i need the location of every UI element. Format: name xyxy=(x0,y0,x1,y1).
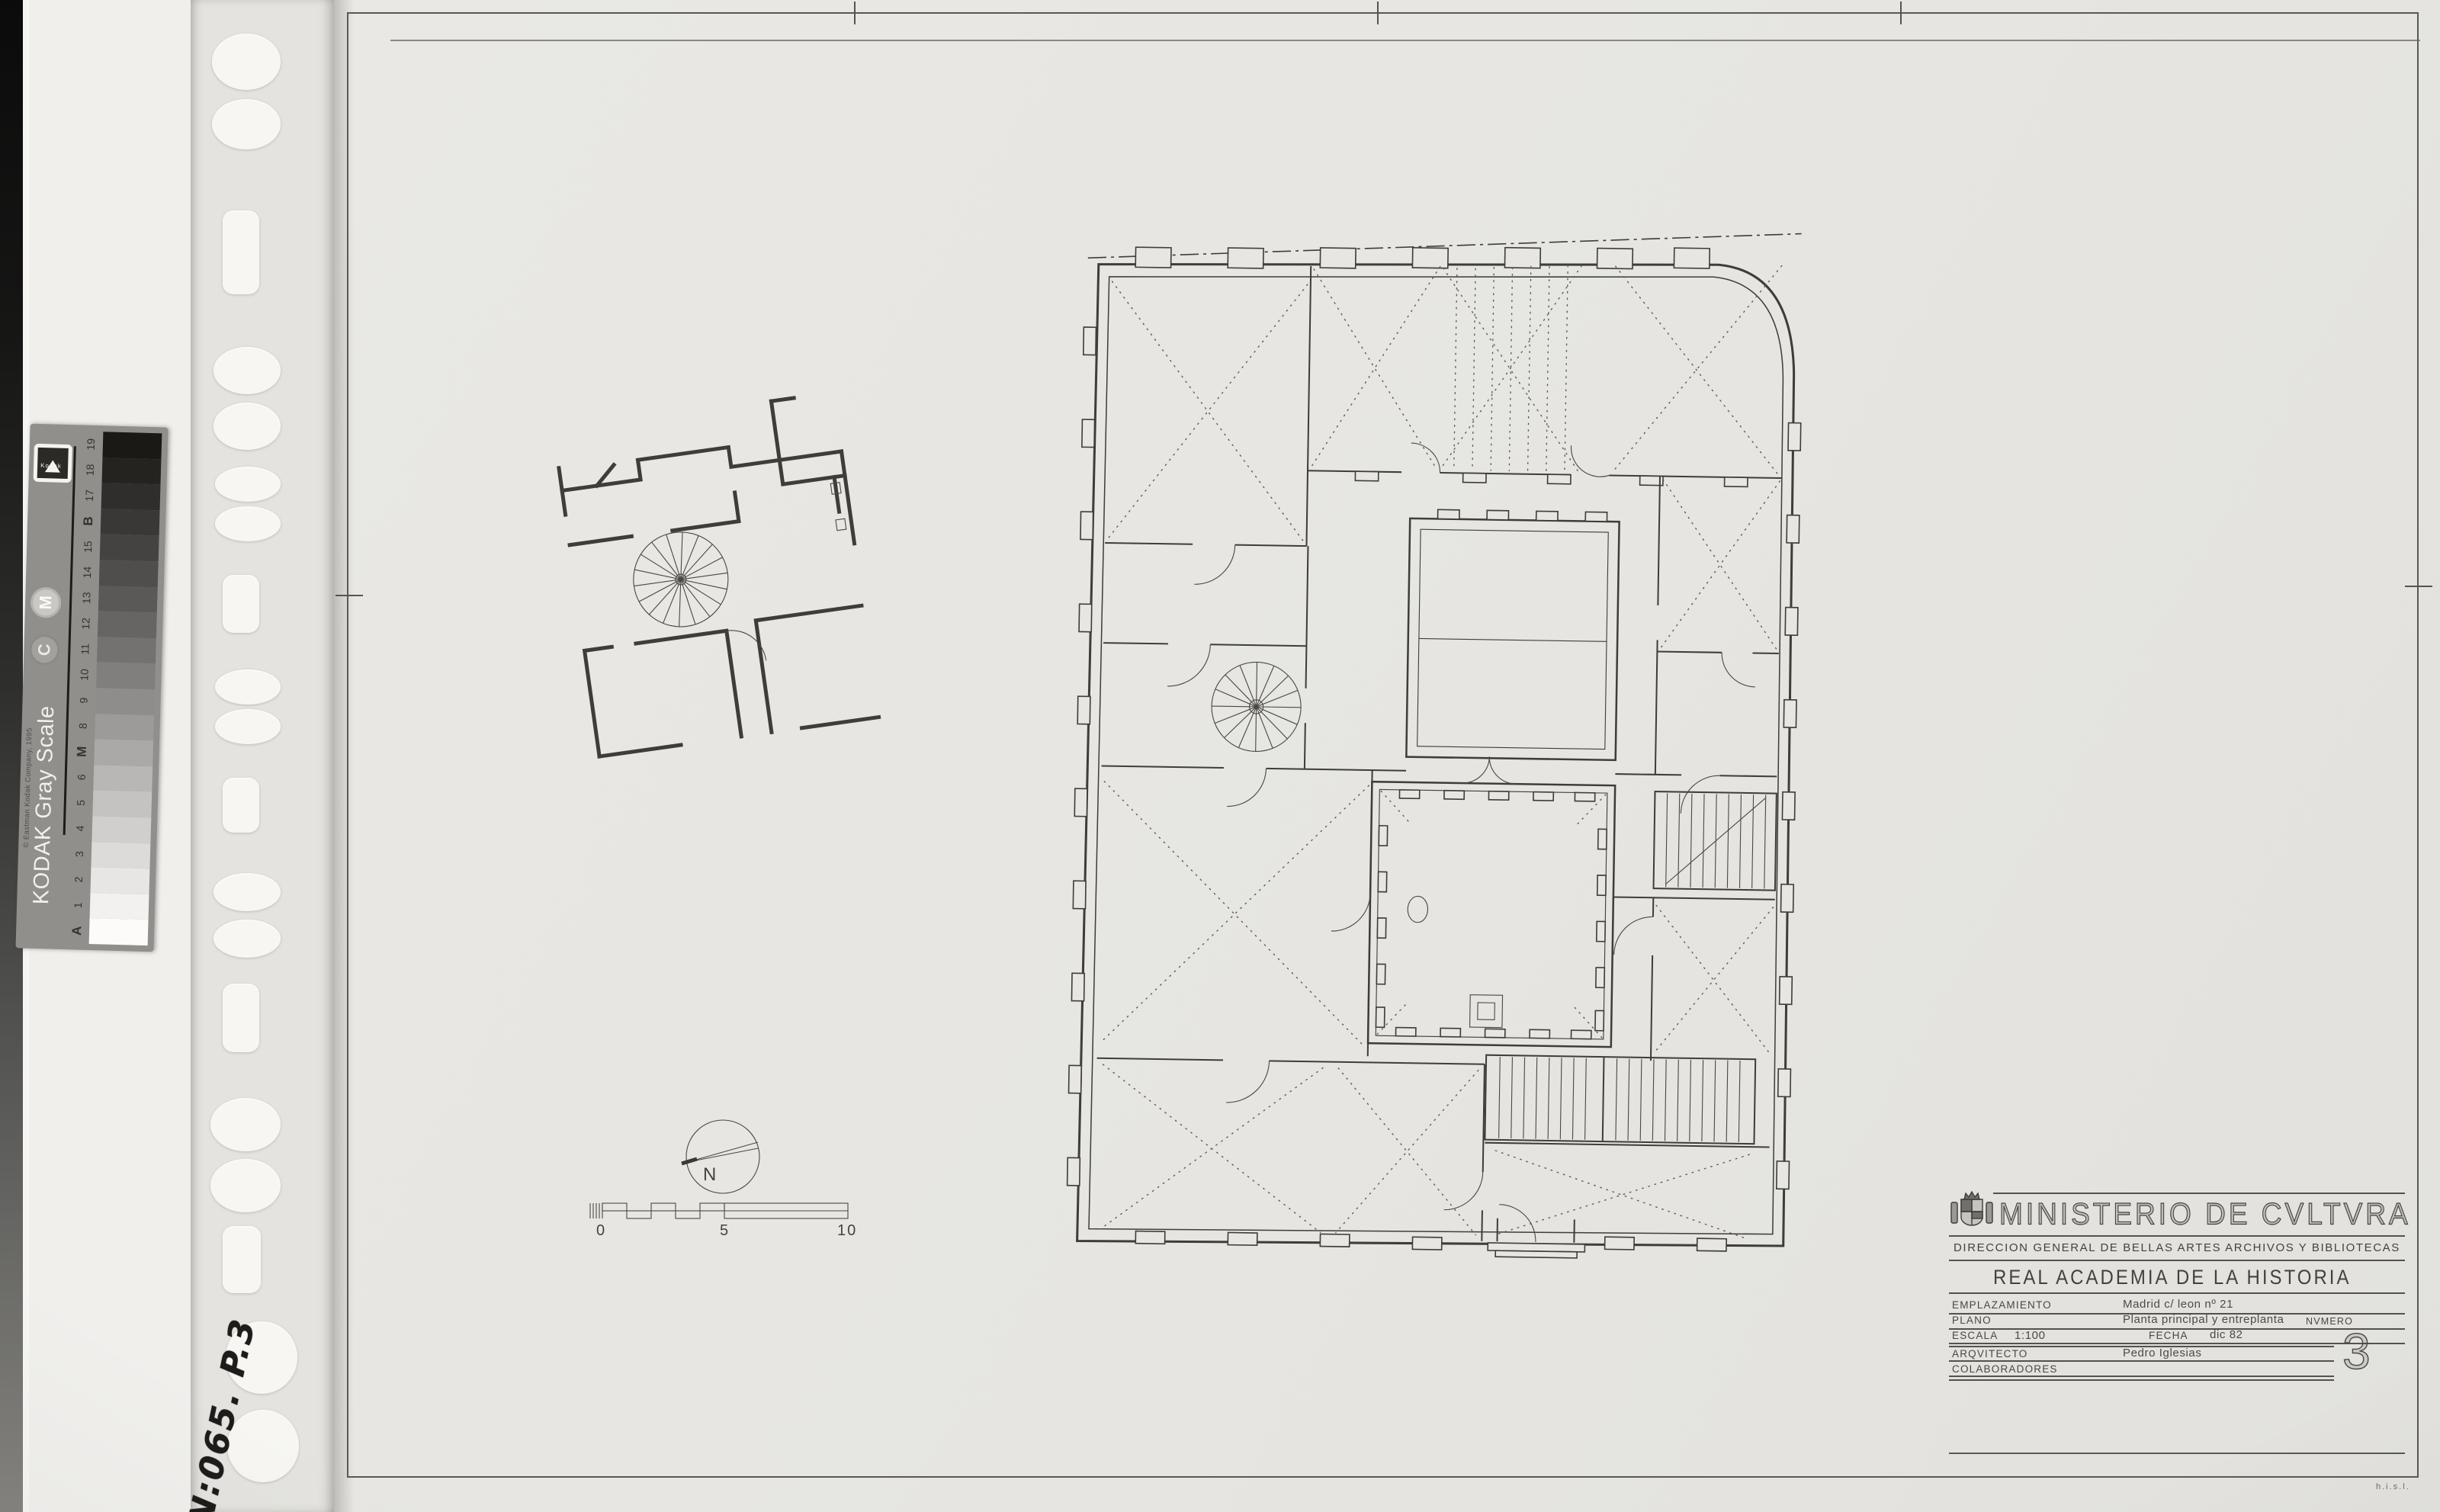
registration-tick xyxy=(1377,2,1379,24)
gray-step-patch xyxy=(97,637,156,664)
field-value-escala: 1:100 xyxy=(2015,1329,2046,1342)
gray-step-label: M xyxy=(69,738,95,764)
field-label-arquitecto: ARQVITECTO xyxy=(1952,1348,2028,1360)
gray-step-patch xyxy=(102,432,162,459)
binder-hole xyxy=(212,34,281,90)
binder-hole xyxy=(215,669,281,705)
department-line: DIRECCION GENERAL DE BELLAS ARTES ARCHIV… xyxy=(1954,1241,2400,1254)
binder-hole xyxy=(213,873,281,911)
binder-hole xyxy=(215,467,281,502)
binder-hole xyxy=(213,920,281,958)
door-arcs xyxy=(1159,439,1759,1245)
gray-step-label: 10 xyxy=(72,662,97,688)
field-label-escala: ESCALA xyxy=(1952,1330,1998,1341)
gray-step-label: 15 xyxy=(75,534,101,560)
field-value-arquitecto: Pedro Iglesias xyxy=(2123,1347,2201,1360)
plastic-sleeve-binding xyxy=(191,0,334,1512)
gray-step-patch xyxy=(92,791,152,818)
staircase xyxy=(1499,791,1766,1142)
kodak-logo: Kodak xyxy=(34,444,72,483)
svg-text:0: 0 xyxy=(596,1222,606,1239)
registration-tick xyxy=(854,2,856,24)
kodak-c-patch: C xyxy=(29,634,60,666)
gray-step-patch xyxy=(93,765,152,792)
binder-hole xyxy=(213,347,281,394)
vault-lines xyxy=(1097,255,1783,1240)
kodak-title: KODAK Gray Scale xyxy=(29,705,59,905)
field-value-plano: Planta principal y entreplanta xyxy=(2123,1313,2284,1326)
gray-step-patch xyxy=(90,893,149,920)
gray-step-patch xyxy=(99,560,159,587)
scan-edge-shadow xyxy=(0,0,23,1512)
gray-step-patch xyxy=(91,867,150,894)
field-value-emplazamiento: Madrid c/ leon nº 21 xyxy=(2123,1298,2233,1311)
gray-step-patch xyxy=(95,714,154,741)
binder-slot xyxy=(223,1226,261,1293)
binder-hole xyxy=(210,1159,281,1212)
main-floor-plan xyxy=(1065,212,1806,1270)
kodak-gray-scale-strip: © Eastman Kodak Company, 1995 KODAK Gray… xyxy=(15,424,169,954)
binder-hole xyxy=(213,403,281,450)
north-label: N xyxy=(703,1164,718,1185)
gray-step-label: 9 xyxy=(71,687,96,713)
gray-step-label: 8 xyxy=(70,713,95,739)
gray-step-label: 19 xyxy=(78,432,103,457)
sheet-number: 3 xyxy=(2342,1322,2371,1380)
gray-step-patch xyxy=(94,739,153,766)
binder-slot xyxy=(223,984,259,1052)
gray-step-patch xyxy=(95,688,155,715)
field-label-plano: PLANO xyxy=(1952,1315,1992,1326)
binder-hole xyxy=(215,709,281,744)
gray-step-patch xyxy=(101,509,160,536)
binder-slot xyxy=(223,210,259,294)
gray-step-label: 3 xyxy=(66,841,91,867)
field-label-fecha: FECHA xyxy=(2149,1330,2188,1341)
printer-corner-mark: h.i.s.l. xyxy=(2376,1482,2410,1491)
title-block: MINISTERIO DE CVLTVRA DIRECCION GENERAL … xyxy=(1949,1186,2406,1385)
gray-step-patch xyxy=(98,611,157,638)
gray-step-label: 1 xyxy=(66,892,91,918)
institution-title: REAL ACADEMIA DE LA HISTORIA xyxy=(1993,1266,2351,1290)
field-value-fecha: dic 82 xyxy=(2210,1328,2243,1341)
gray-step-label: 18 xyxy=(78,457,103,483)
spiral-stair xyxy=(1211,662,1302,753)
gray-step-patch xyxy=(98,586,158,613)
field-label-emplazamiento: EMPLAZAMIENTO xyxy=(1952,1299,2052,1311)
gray-step-patch xyxy=(91,816,151,843)
gray-step-patch xyxy=(101,483,161,511)
gray-step-label: 6 xyxy=(69,764,94,790)
coat-of-arms-emblem xyxy=(1949,1189,1995,1232)
binder-hole xyxy=(212,99,281,149)
gray-step-patch xyxy=(102,457,162,485)
scale-bar: 0 5 10 xyxy=(589,1197,856,1243)
binder-slot xyxy=(223,778,259,833)
gray-step-label: 4 xyxy=(67,815,92,841)
kodak-m-patch: M xyxy=(30,587,62,618)
gray-step-label: B xyxy=(76,508,101,534)
registration-tick xyxy=(2405,586,2432,587)
binder-hole xyxy=(210,1098,281,1151)
registration-tick xyxy=(1900,2,1902,24)
ministry-title: MINISTERIO DE CVLTVRA xyxy=(1999,1197,2411,1231)
gray-step-patch xyxy=(89,918,149,945)
title-block-bottom-rule xyxy=(1949,1453,2405,1454)
gray-step-label: 14 xyxy=(75,559,100,585)
mezzanine-plan xyxy=(541,361,896,785)
gray-step-label: 13 xyxy=(74,585,99,611)
binder-slot xyxy=(223,575,259,633)
gray-step-label: 5 xyxy=(68,790,93,816)
gray-step-patch xyxy=(91,842,150,869)
gray-step-label: 11 xyxy=(72,636,98,662)
scanned-archive-photo: N 0 5 10 xyxy=(0,0,2440,1512)
gray-step-patch xyxy=(96,663,156,690)
gray-step-label: A xyxy=(65,918,90,944)
registration-tick xyxy=(335,595,363,596)
gray-step-label: 12 xyxy=(73,611,98,637)
binder-hole xyxy=(215,506,281,541)
sheet-margin-rule xyxy=(390,40,2420,41)
field-label-colaboradores: COLABORADORES xyxy=(1952,1363,2058,1375)
gray-step-label: 2 xyxy=(66,866,91,892)
gray-step-patch xyxy=(100,534,159,562)
gray-step-label: 17 xyxy=(77,483,102,509)
svg-text:10: 10 xyxy=(837,1222,857,1239)
svg-text:5: 5 xyxy=(720,1222,730,1239)
